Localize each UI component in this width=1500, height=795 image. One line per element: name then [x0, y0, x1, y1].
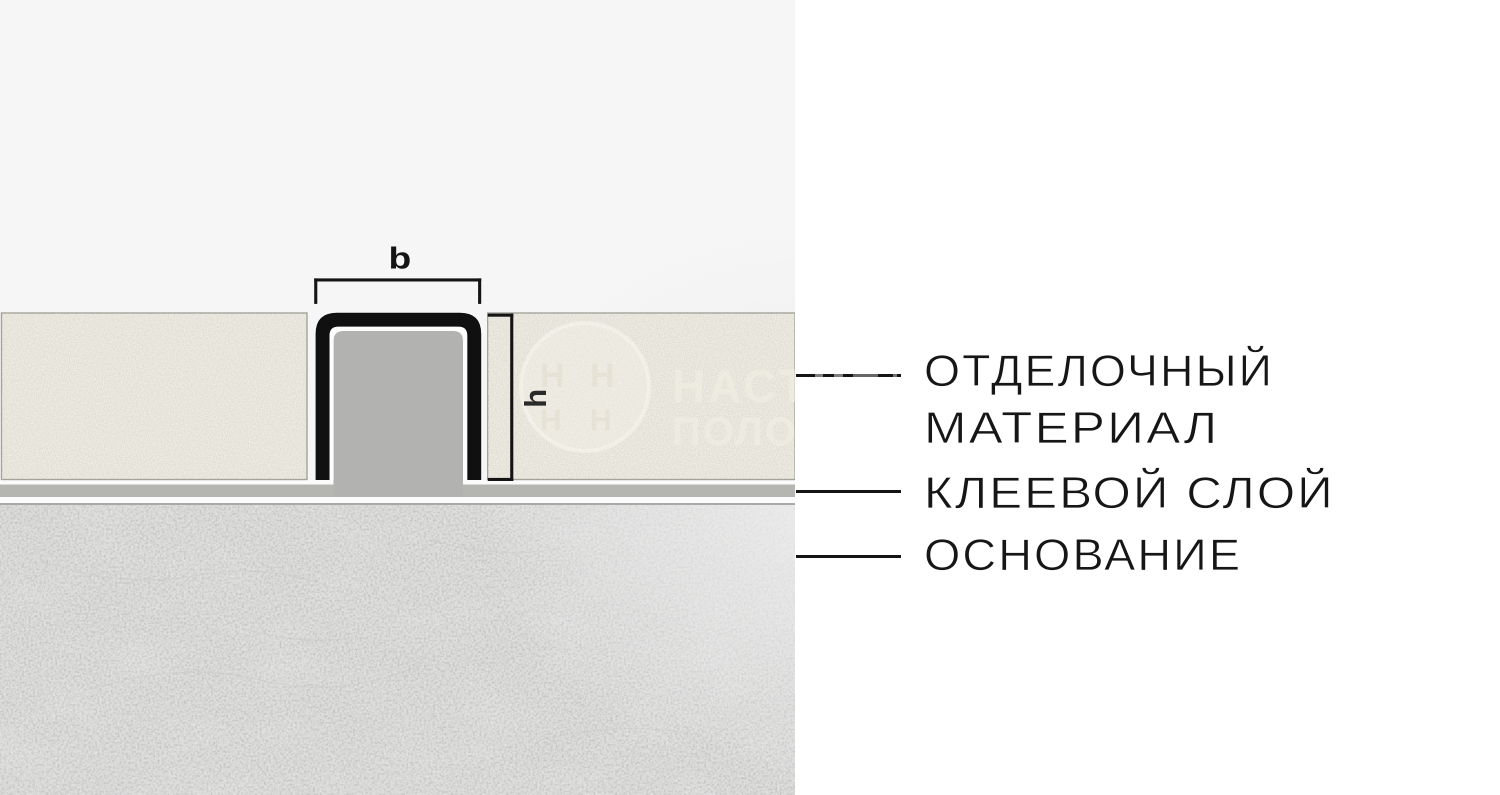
svg-text:Н: Н [540, 404, 562, 437]
svg-text:b: b [389, 241, 412, 275]
svg-text:Н: Н [590, 357, 615, 395]
svg-text:НАСТ: НАСТ [672, 360, 795, 412]
svg-text:ПОЛОВ: ПОЛОВ [672, 410, 795, 454]
svg-text:Н: Н [590, 404, 612, 437]
svg-text:h: h [518, 389, 553, 408]
